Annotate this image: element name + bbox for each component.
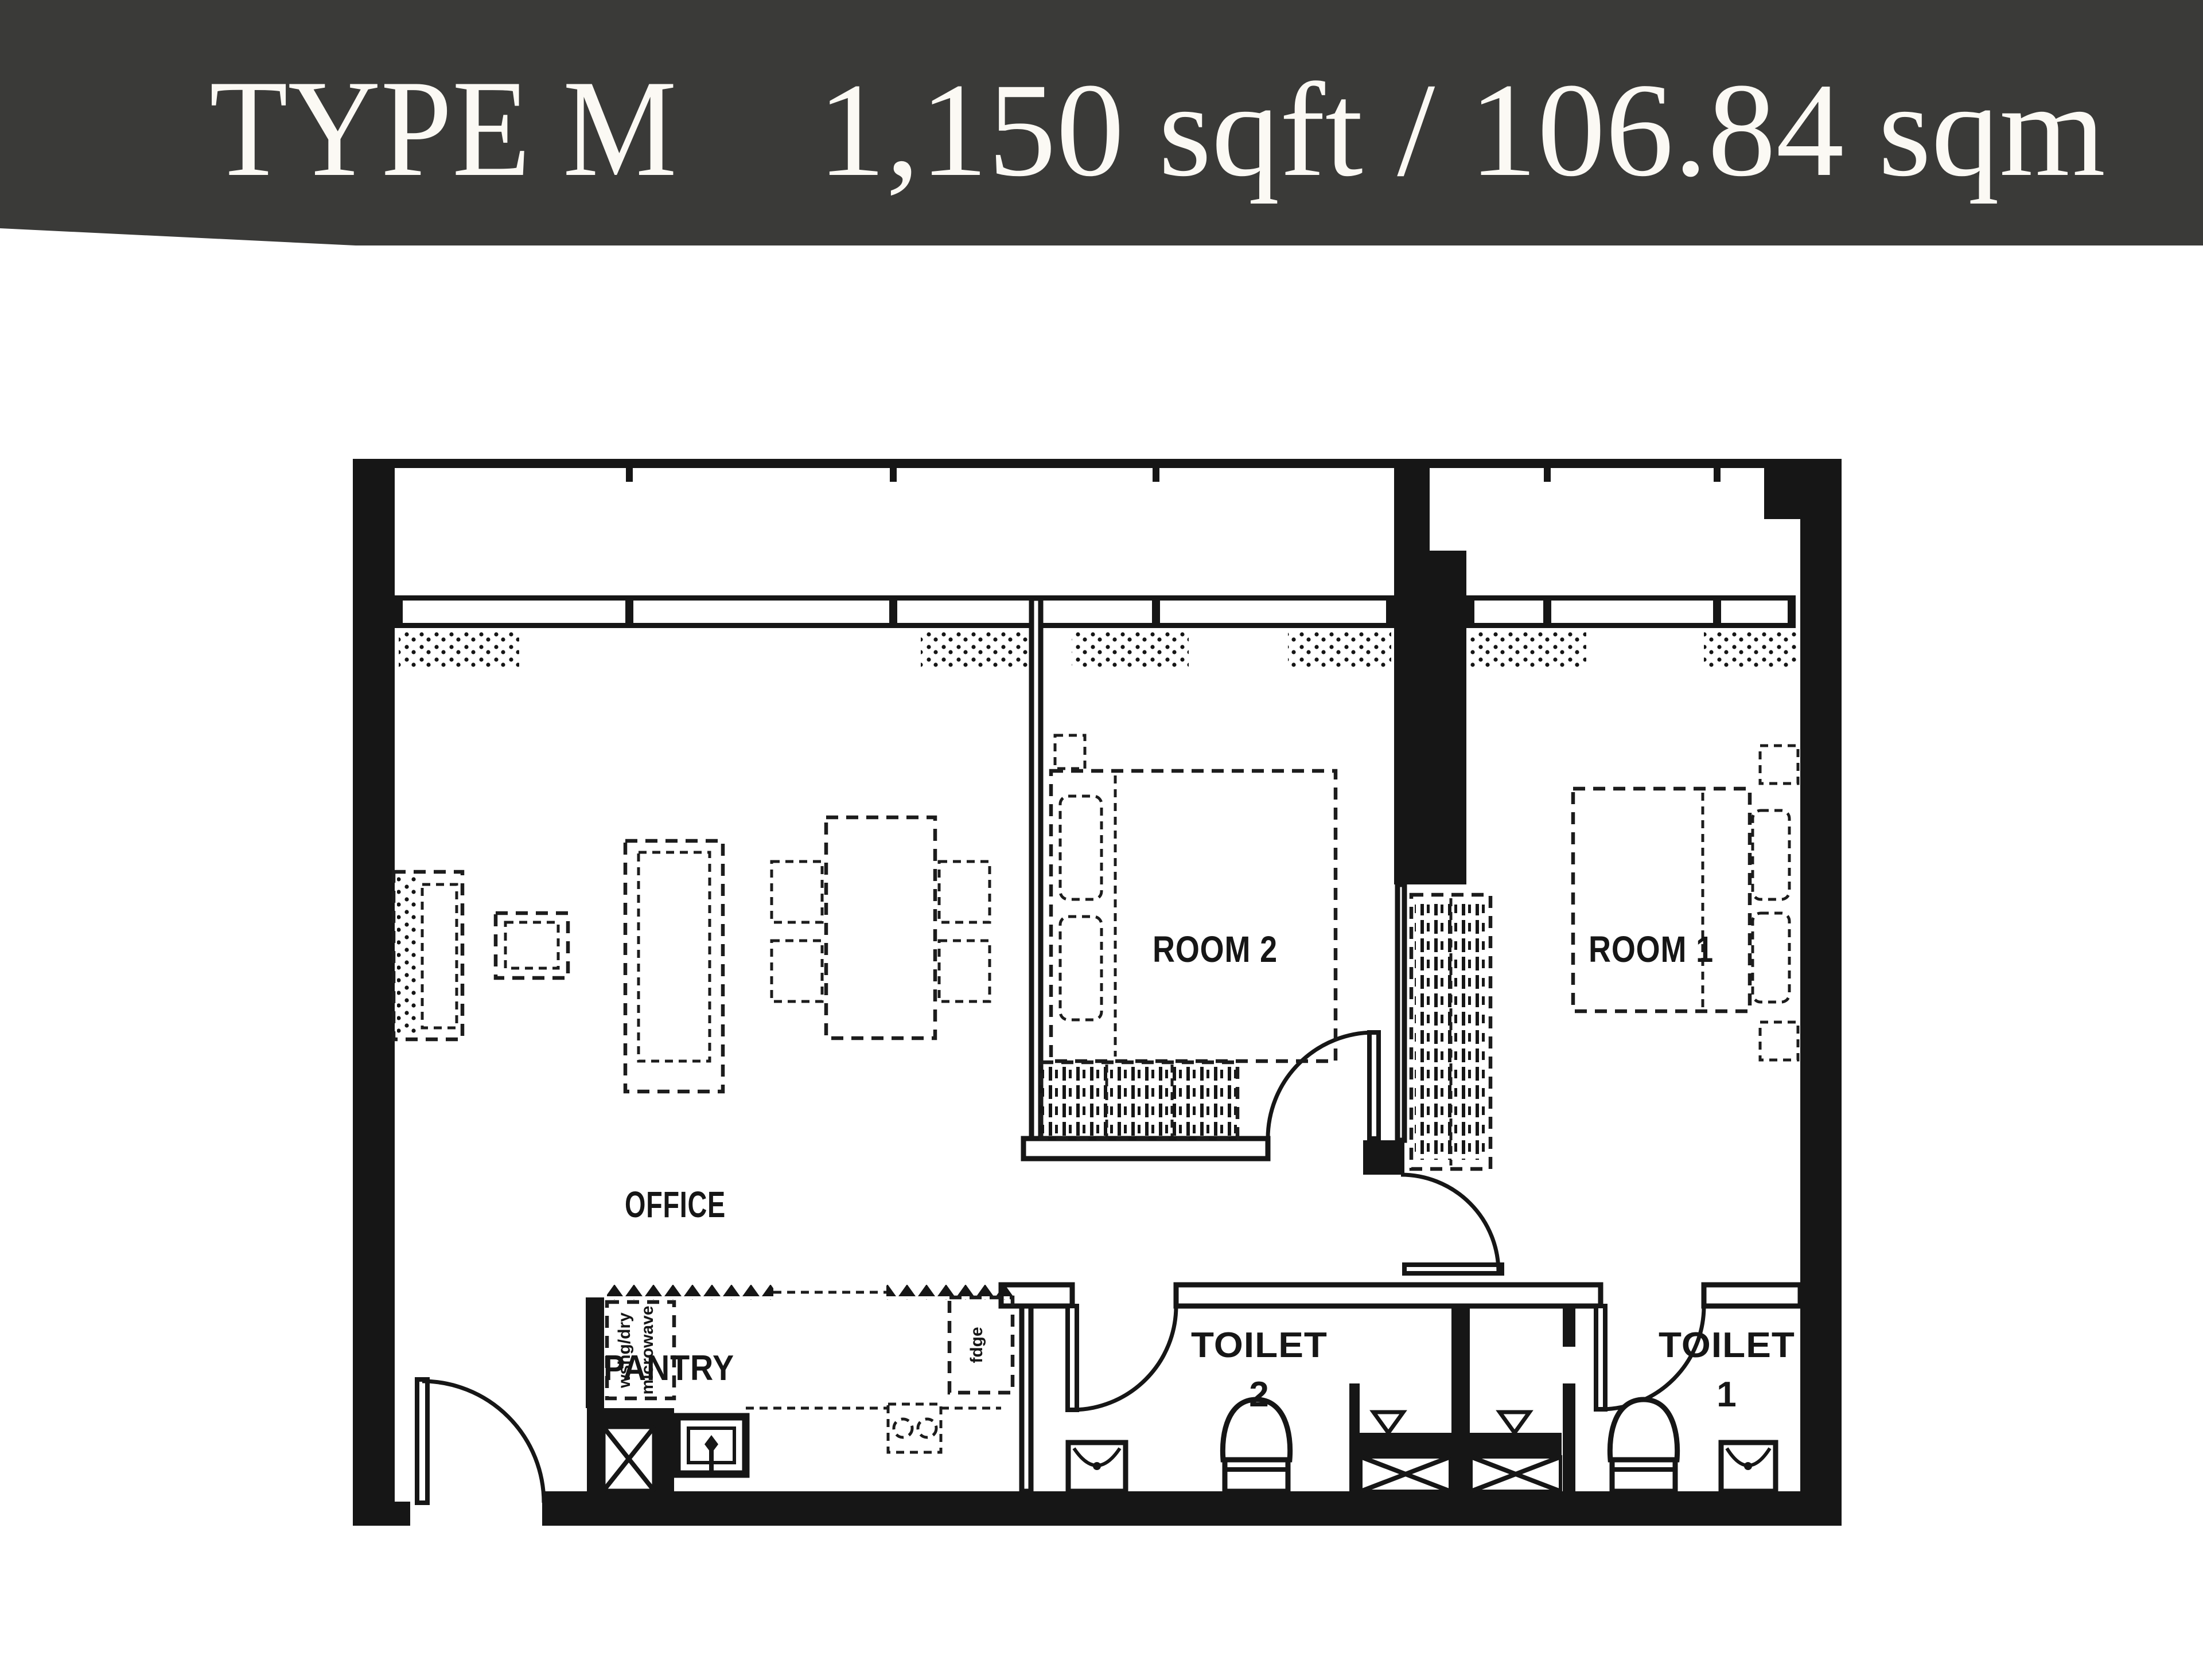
room2-nightstand	[1055, 735, 1085, 769]
room1-nightstand-top	[1760, 746, 1798, 784]
toilet2-shower-wall	[1360, 1433, 1451, 1457]
toilet1-shower-box	[1471, 1457, 1560, 1491]
top-right-corner-block	[1764, 459, 1842, 519]
room2-bench	[1041, 1062, 1237, 1139]
shower-symbol-toilet1	[1500, 1412, 1529, 1433]
toilet2: TOILET 2	[1068, 1326, 1328, 1491]
window-stipple	[399, 632, 1799, 669]
pantry-toilet2-wall	[1022, 1306, 1031, 1491]
pantry: wshg/dry microwave fdge PANTRY	[586, 1285, 1013, 1491]
wardrobe	[1411, 895, 1490, 1169]
bottom-wall	[542, 1491, 1842, 1526]
office-furniture: OFFICE	[394, 817, 990, 1225]
room1-nightstand-bottom	[1760, 1022, 1798, 1060]
top-wall	[353, 459, 1842, 468]
kitchen-sink	[677, 1417, 746, 1478]
right-wall	[1800, 459, 1842, 1526]
room1-contents: ROOM 1	[1573, 746, 1798, 1060]
corridor-door-stub	[1363, 1140, 1404, 1175]
toilet1-number: 1	[1717, 1375, 1737, 1414]
coffee-table	[496, 913, 568, 978]
toilet1-shower-stub	[1563, 1383, 1575, 1491]
fridge: fdge	[949, 1297, 1013, 1393]
toilet2-door	[1068, 1306, 1176, 1410]
pantry-cabinet-wall	[586, 1297, 604, 1408]
toilet1-entry-stub	[1563, 1306, 1575, 1347]
shower-center-wall	[1451, 1306, 1470, 1491]
window-band	[395, 468, 1799, 669]
room2-contents: ROOM 2	[1041, 735, 1336, 1139]
toilet1-shower-wall	[1470, 1433, 1562, 1457]
shaft-corridor-wall	[1398, 884, 1404, 1140]
toilet1: TOILET 1	[1610, 1326, 1795, 1491]
shower-symbol-toilet2	[1373, 1412, 1403, 1433]
outer-walls	[353, 459, 1842, 1526]
sofa	[394, 872, 462, 1039]
left-wall-foot	[353, 1502, 410, 1526]
console-desk	[625, 841, 723, 1092]
stove	[888, 1404, 941, 1452]
shaft-column-lower	[1394, 551, 1466, 884]
office-label: OFFICE	[625, 1184, 726, 1225]
entrance-door	[417, 1379, 544, 1503]
room2-bottom-wall	[1023, 1139, 1268, 1159]
shaft-column-upper	[1394, 459, 1430, 552]
toilet2-basin	[1068, 1443, 1126, 1491]
dining-set	[772, 817, 990, 1038]
room2-bed	[1051, 771, 1336, 1061]
room1-bed	[1573, 789, 1789, 1011]
toilet2-number: 2	[1249, 1375, 1269, 1414]
title-banner: TYPE M 1,150 sqft / 106.84 sqm	[0, 0, 2203, 245]
toilet2-shower-box	[1361, 1457, 1450, 1491]
room2-label: ROOM 2	[1153, 929, 1278, 970]
pantry-hatch-left	[607, 1285, 773, 1300]
service-shaft	[587, 1408, 674, 1491]
toilet1-wc	[1610, 1400, 1677, 1491]
toilet1-basin	[1721, 1443, 1776, 1491]
plan-area-label: 1,150 sqft / 106.84 sqm	[818, 55, 2105, 204]
facade-ticks	[626, 468, 1721, 482]
floor-plan-page: TYPE M 1,150 sqft / 106.84 sqm	[0, 0, 2203, 1680]
corridor-wall-right	[1704, 1285, 1800, 1306]
corridor-wall-mid	[1176, 1285, 1601, 1306]
corridor-door	[1401, 1175, 1502, 1273]
room1-label: ROOM 1	[1589, 929, 1714, 970]
toilet2-shower-stub	[1349, 1383, 1360, 1491]
toilet2-label: TOILET	[1191, 1326, 1328, 1365]
fridge-label: fdge	[967, 1327, 986, 1363]
pantry-label: PANTRY	[604, 1348, 734, 1388]
left-wall	[353, 459, 395, 1526]
office-room2-divider	[1032, 598, 1041, 1139]
toilet1-label: TOILET	[1659, 1326, 1795, 1365]
plan-type-label: TYPE M	[209, 52, 677, 205]
floor-plan-canvas: TYPE M 1,150 sqft / 106.84 sqm	[0, 0, 2203, 1680]
room2-door	[1268, 1032, 1379, 1139]
